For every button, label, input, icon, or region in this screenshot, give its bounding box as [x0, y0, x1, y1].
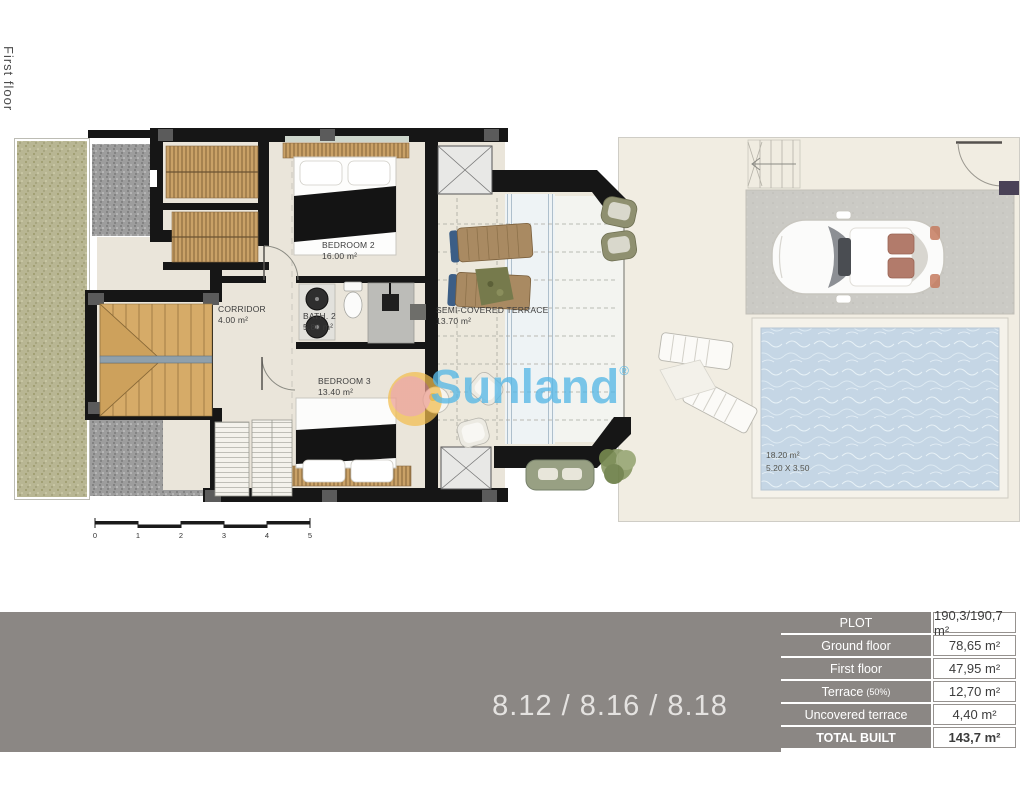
window-notch	[150, 170, 157, 187]
car	[772, 211, 944, 303]
scale-tick: 2	[175, 531, 187, 540]
row-value: 47,95 m²	[933, 658, 1016, 679]
scale-tick: 5	[304, 531, 316, 540]
table-row: First floor 47,95 m²	[781, 658, 1016, 679]
row-value: 78,65 m²	[933, 635, 1016, 656]
room-label-corridor: CORRIDOR 4.00 m²	[218, 304, 266, 326]
table-row: Ground floor 78,65 m²	[781, 635, 1016, 656]
unit-numbers: 8.12 / 8.16 / 8.18	[430, 690, 790, 723]
scale-tick: 1	[132, 531, 144, 540]
bed-bedroom2	[283, 143, 409, 255]
gravel-top	[92, 144, 158, 236]
row-value: 143,7 m²	[933, 727, 1016, 748]
outdoor-sofa	[526, 460, 594, 490]
scale-bar	[95, 518, 310, 528]
row-label: Terrace(50%)	[781, 681, 931, 702]
entry-stairs	[748, 140, 800, 188]
window-strip	[285, 136, 409, 142]
row-label: Ground floor	[781, 635, 931, 656]
room-label-bedroom3: BEDROOM 3 13.40 m²	[318, 376, 371, 398]
room-name: BEDROOM 2	[322, 240, 375, 251]
staircase	[100, 304, 212, 416]
row-value: 4,40 m²	[933, 704, 1016, 725]
room-label-bath2: BATH. 2 5.80 m²	[303, 311, 336, 333]
room-label-bedroom2: BEDROOM 2 16.00 m²	[322, 240, 375, 262]
row-label-suffix: (50%)	[866, 687, 890, 697]
room-area: 16.00 m²	[322, 251, 375, 262]
pool-dimensions: 5.20 X 3.50	[766, 462, 809, 475]
room-area: 13.70 m²	[436, 316, 548, 327]
pool-label: 18.20 m² 5.20 X 3.50	[766, 449, 809, 475]
room-area: 4.00 m²	[218, 315, 266, 326]
page: { "page": { "floor_label": "First floor"…	[0, 0, 1024, 800]
bed-bedroom3	[283, 398, 411, 486]
row-label: Uncovered terrace	[781, 704, 931, 725]
row-label: TOTAL BUILT	[781, 727, 931, 748]
row-value: 12,70 m²	[933, 681, 1016, 702]
scale-tick: 3	[218, 531, 230, 540]
table-row-total: TOTAL BUILT 143,7 m²	[781, 727, 1016, 748]
room-name: SEMI-COVERED TERRACE	[436, 305, 548, 316]
room-area: 5.80 m²	[303, 322, 336, 333]
room-name: BEDROOM 3	[318, 376, 371, 387]
room-label-terrace: SEMI-COVERED TERRACE 13.70 m²	[436, 305, 548, 327]
row-value: 190,3/190,7 m²	[933, 612, 1016, 633]
row-label: PLOT	[781, 612, 931, 633]
pool-area: 18.20 m²	[766, 449, 809, 462]
table-row: PLOT 190,3/190,7 m²	[781, 612, 1016, 633]
row-label: First floor	[781, 658, 931, 679]
summary-table: PLOT 190,3/190,7 m² Ground floor 78,65 m…	[781, 612, 1016, 748]
room-name: BATH. 2	[303, 311, 336, 322]
room-name: CORRIDOR	[218, 304, 266, 315]
closet-bedroom3	[215, 420, 292, 496]
footer-bar	[0, 612, 781, 752]
floor-plan	[0, 0, 1024, 580]
table-row: Terrace(50%) 12,70 m²	[781, 681, 1016, 702]
garden-strip	[15, 139, 90, 500]
table-row: Uncovered terrace 4,40 m²	[781, 704, 1016, 725]
scale-tick: 4	[261, 531, 273, 540]
scale-tick: 0	[89, 531, 101, 540]
room-area: 13.40 m²	[318, 387, 371, 398]
